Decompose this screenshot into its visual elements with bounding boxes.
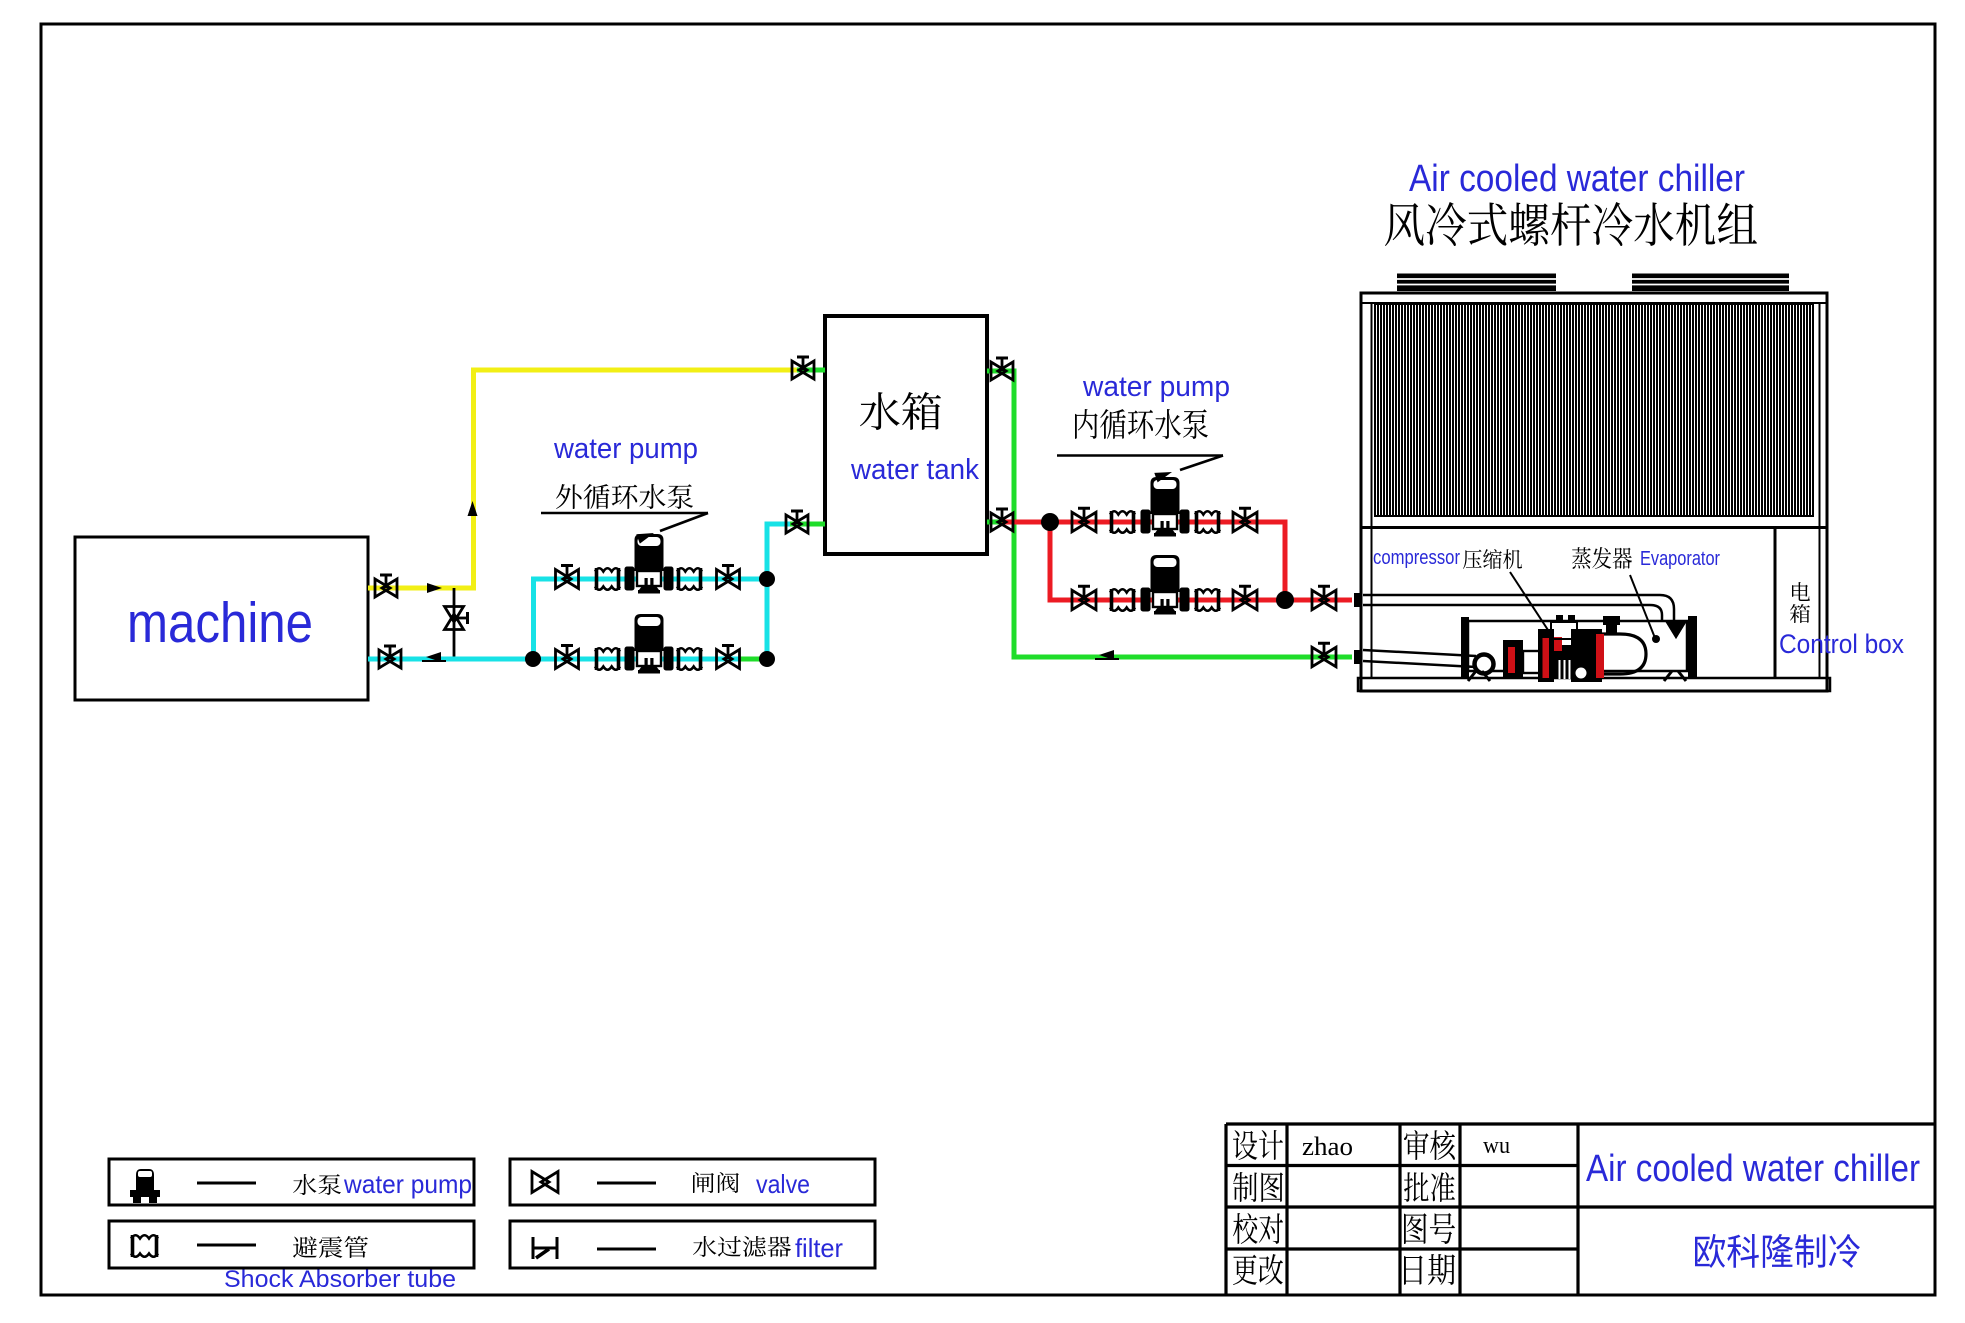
svg-text:zhao: zhao (1302, 1132, 1353, 1161)
svg-text:wu: wu (1483, 1133, 1510, 1159)
svg-text:Air cooled water chiller: Air cooled water chiller (1409, 158, 1745, 200)
svg-text:compressor: compressor (1373, 547, 1460, 569)
svg-text:Control box: Control box (1779, 629, 1904, 659)
svg-text:water tank: water tank (850, 454, 979, 486)
svg-text:Evaporator: Evaporator (1640, 548, 1720, 570)
svg-text:water pump: water pump (1082, 371, 1230, 403)
svg-text:water pump: water pump (343, 1169, 472, 1199)
svg-text:machine: machine (127, 591, 313, 655)
svg-text:Air cooled water chiller: Air cooled water chiller (1586, 1148, 1920, 1190)
svg-text:water pump: water pump (553, 433, 698, 465)
svg-text:valve: valve (756, 1169, 810, 1199)
svg-text:Shock Absorber tube: Shock Absorber tube (224, 1266, 456, 1293)
svg-text:filter: filter (795, 1233, 843, 1263)
